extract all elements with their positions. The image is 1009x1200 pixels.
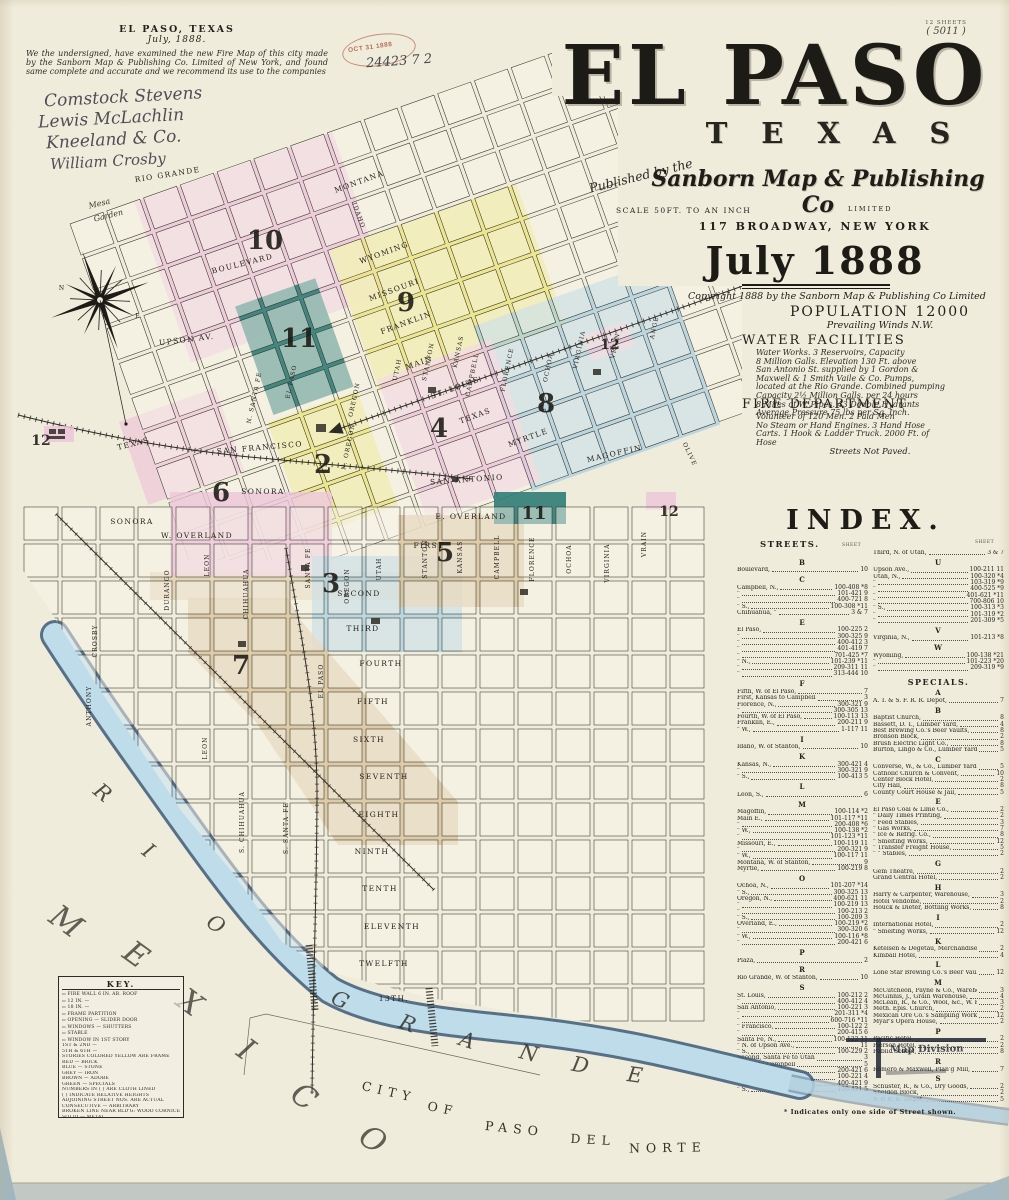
sheet-edges bbox=[0, 1128, 1009, 1200]
map-block bbox=[487, 104, 531, 147]
map-block bbox=[518, 618, 552, 651]
map-block bbox=[632, 988, 666, 1021]
map-block bbox=[480, 692, 514, 725]
map-block bbox=[632, 914, 666, 947]
street-label-sixth: SIXTH bbox=[353, 735, 385, 744]
map-block bbox=[290, 914, 324, 947]
map-block bbox=[328, 840, 362, 873]
map-block bbox=[252, 692, 286, 725]
map-block bbox=[404, 581, 438, 614]
map-block bbox=[366, 803, 400, 836]
map-block bbox=[442, 655, 476, 688]
map-block bbox=[176, 581, 210, 614]
map-block bbox=[404, 803, 438, 836]
map-block bbox=[176, 766, 210, 799]
map-block bbox=[252, 877, 286, 910]
street-label-kansas-s: KANSAS bbox=[457, 541, 464, 574]
copyright-stamp: OCT 31 1888 24423 7 2 bbox=[338, 34, 448, 84]
map-block bbox=[100, 618, 134, 651]
paso-del-norte-word: NORTE bbox=[629, 1139, 707, 1155]
map-block bbox=[252, 766, 286, 799]
map-block bbox=[556, 951, 590, 984]
street-label-vrain-s: VRAIN bbox=[641, 531, 648, 558]
map-block bbox=[556, 877, 590, 910]
map-block bbox=[450, 117, 494, 160]
mexico-letter: E bbox=[115, 933, 156, 976]
rio-grande-letter: R bbox=[88, 778, 116, 807]
map-block bbox=[556, 840, 590, 873]
map-block bbox=[404, 840, 438, 873]
map-block bbox=[632, 951, 666, 984]
map-block bbox=[389, 178, 433, 221]
key-title: KEY. bbox=[62, 979, 180, 990]
map-block bbox=[632, 544, 666, 577]
street-label-ochoa-s: OCHOA bbox=[566, 544, 573, 574]
map-block bbox=[518, 914, 552, 947]
map-block bbox=[594, 618, 628, 651]
map-block bbox=[556, 766, 590, 799]
title-date: July 1888 bbox=[640, 238, 990, 283]
signatures: Comstock StevensLewis McLachlinKneeland … bbox=[44, 84, 328, 168]
map-block bbox=[480, 803, 514, 836]
fire-department-text: Volunteer of 120 Men. 2 Paid MenNo Steam… bbox=[756, 413, 994, 447]
street-label-sonora-w: SONORA bbox=[110, 517, 153, 526]
map-block bbox=[138, 692, 172, 725]
map-block bbox=[176, 655, 210, 688]
rio-grande-letter: O bbox=[202, 909, 230, 939]
map-block bbox=[24, 951, 58, 984]
map-block bbox=[561, 196, 605, 239]
stamp-bar bbox=[876, 1038, 881, 1078]
map-block bbox=[518, 581, 552, 614]
title-address: 117 BROADWAY, NEW YORK bbox=[640, 220, 990, 233]
map-block bbox=[404, 692, 438, 725]
map-block bbox=[556, 618, 590, 651]
street-label-sonora: SONORA bbox=[241, 487, 284, 496]
map-block bbox=[290, 618, 324, 651]
attestation-date: July, 1888. bbox=[26, 35, 328, 45]
map-block bbox=[62, 840, 96, 873]
street-label-el-paso-s: EL PASO bbox=[318, 664, 325, 699]
map-block bbox=[438, 82, 482, 125]
district-number: 8 bbox=[537, 389, 555, 419]
map-block bbox=[100, 877, 134, 910]
map-block bbox=[480, 766, 514, 799]
map-block bbox=[366, 766, 400, 799]
map-block bbox=[138, 618, 172, 651]
compass-e-label: E bbox=[135, 313, 140, 320]
map-block bbox=[426, 165, 470, 208]
map-block bbox=[518, 803, 552, 836]
street-label-virginia-s: VIRGINIA bbox=[604, 543, 611, 583]
street-label-fourth: FOURTH bbox=[359, 659, 402, 668]
map-block bbox=[474, 69, 518, 112]
map-block bbox=[376, 143, 420, 186]
map-block bbox=[404, 507, 438, 540]
map-division-text: Map Division bbox=[890, 1043, 964, 1055]
map-block bbox=[632, 692, 666, 725]
map-block bbox=[442, 766, 476, 799]
paso-del-norte-word: DEL bbox=[570, 1131, 616, 1148]
map-block bbox=[518, 692, 552, 725]
title-city: EL PASO bbox=[552, 34, 998, 118]
map-block bbox=[594, 729, 628, 762]
map-block bbox=[670, 544, 704, 577]
title-scale: SCALE 50FT. TO AN INCH bbox=[616, 206, 751, 215]
map-block bbox=[100, 803, 134, 836]
mexico-letter: O bbox=[352, 1118, 393, 1162]
mexico-letter: M bbox=[42, 897, 91, 946]
map-block bbox=[214, 692, 248, 725]
street-label-overland-e: E. OVERLAND bbox=[435, 512, 506, 521]
map-block bbox=[252, 655, 286, 688]
map-block bbox=[670, 729, 704, 762]
paso-del-norte-word: CITY bbox=[360, 1078, 417, 1105]
map-division-stamp: Map Division bbox=[846, 1036, 996, 1086]
map-block bbox=[24, 544, 58, 577]
map-block bbox=[364, 108, 408, 151]
street-label-chihuahua-s: S. CHIHUAHUA bbox=[239, 791, 246, 853]
map-block bbox=[24, 803, 58, 836]
street-label-leon: LEON bbox=[204, 554, 211, 577]
map-block bbox=[176, 692, 210, 725]
map-block bbox=[556, 544, 590, 577]
district-number: 2 bbox=[314, 450, 332, 480]
map-block bbox=[670, 988, 704, 1021]
key-row: ADJOINING STREET NOS. ARE ACTUAL bbox=[62, 1098, 180, 1104]
map-block bbox=[594, 655, 628, 688]
street-label-chihuahua: CHIHUAHUA bbox=[243, 569, 250, 620]
district-number: 12 bbox=[659, 504, 678, 520]
map-block bbox=[518, 655, 552, 688]
map-block bbox=[24, 729, 58, 762]
map-block bbox=[670, 692, 704, 725]
map-block bbox=[518, 729, 552, 762]
street-label-twelfth: TWELFTH bbox=[359, 959, 409, 968]
map-block bbox=[290, 766, 324, 799]
street-label-seventh: SEVENTH bbox=[359, 772, 408, 781]
map-block bbox=[548, 161, 592, 204]
streets-not-paved: Streets Not Paved. bbox=[770, 447, 970, 457]
map-block bbox=[176, 618, 210, 651]
map-block bbox=[328, 729, 362, 762]
map-block bbox=[442, 581, 476, 614]
map-block bbox=[556, 729, 590, 762]
map-block bbox=[556, 507, 590, 540]
map-block bbox=[670, 581, 704, 614]
map-block bbox=[573, 230, 617, 273]
map-block bbox=[328, 803, 362, 836]
map-block bbox=[290, 507, 324, 540]
map-block bbox=[214, 951, 248, 984]
key-row: BROKEN LINE NEAR BLD'G: WOOD CORNICE bbox=[62, 1109, 180, 1115]
stamp-bar bbox=[846, 1038, 986, 1042]
street-label-fifth: FIFTH bbox=[357, 697, 389, 706]
paso-del-norte-word: PASO bbox=[484, 1118, 544, 1139]
mesa-garden-label: Mesa bbox=[87, 197, 112, 211]
map-block bbox=[252, 507, 286, 540]
street-label-utah-s: UTAH bbox=[376, 558, 383, 581]
rio-grande-letter: I bbox=[137, 838, 160, 863]
district-number: 4 bbox=[430, 414, 448, 444]
fire-line: Carts. 1 Hook & Ladder Truck. 2000 Ft. o… bbox=[756, 430, 994, 439]
district-number: 6 bbox=[212, 478, 230, 508]
map-block bbox=[442, 692, 476, 725]
map-block bbox=[594, 840, 628, 873]
map-block bbox=[62, 581, 96, 614]
index-footnote: * Indicates only one side of Street show… bbox=[737, 1108, 1003, 1116]
map-block bbox=[252, 581, 286, 614]
map-block bbox=[100, 655, 134, 688]
attestation-body: We the undersigned, have examined the ne… bbox=[26, 49, 328, 76]
map-block bbox=[328, 618, 362, 651]
street-label-campbell-s: CAMPBELL bbox=[494, 535, 501, 580]
street-label-florence-s: FLORENCE bbox=[529, 537, 536, 582]
map-block bbox=[594, 507, 628, 540]
map-block bbox=[518, 766, 552, 799]
map-block bbox=[328, 766, 362, 799]
map-block bbox=[413, 130, 457, 173]
map-block bbox=[328, 655, 362, 688]
stamp-number: 24423 7 2 bbox=[366, 52, 433, 72]
index-sheet-label: SHEET bbox=[842, 543, 861, 548]
map-block bbox=[632, 803, 666, 836]
map-block bbox=[594, 803, 628, 836]
map-block bbox=[518, 840, 552, 873]
rio-grande-letter: D bbox=[569, 1052, 591, 1079]
street-label-crosby: CROSBY bbox=[92, 624, 99, 657]
street-label-thirteenth: 13TH. bbox=[379, 994, 409, 1003]
map-block bbox=[632, 840, 666, 873]
district-number: 9 bbox=[397, 288, 415, 318]
street-label-olive: OLIVE bbox=[681, 441, 698, 467]
map-block bbox=[328, 507, 362, 540]
map-block bbox=[442, 914, 476, 947]
map-block bbox=[632, 766, 666, 799]
map-block bbox=[404, 951, 438, 984]
district-number: 11 bbox=[521, 503, 546, 524]
map-block bbox=[670, 803, 704, 836]
map-block bbox=[556, 988, 590, 1021]
map-block bbox=[176, 877, 210, 910]
map-block bbox=[404, 729, 438, 762]
title-limited: LIMITED bbox=[848, 205, 892, 213]
map-block bbox=[366, 877, 400, 910]
map-block bbox=[670, 618, 704, 651]
map-block bbox=[518, 951, 552, 984]
attestation-place: EL PASO, TEXAS bbox=[26, 24, 328, 35]
map-block bbox=[594, 914, 628, 947]
map-block bbox=[24, 877, 58, 910]
map-block bbox=[290, 877, 324, 910]
map-block bbox=[62, 729, 96, 762]
street-label-oregon-s: OREGON bbox=[344, 568, 351, 603]
map-block bbox=[632, 655, 666, 688]
map-block bbox=[252, 803, 286, 836]
map-block bbox=[366, 729, 400, 762]
map-block bbox=[24, 581, 58, 614]
map-block bbox=[594, 877, 628, 910]
map-block bbox=[518, 877, 552, 910]
district-number: 7 bbox=[232, 651, 250, 681]
map-block bbox=[670, 766, 704, 799]
map-block bbox=[442, 840, 476, 873]
street-label-tenth: TENTH bbox=[362, 884, 398, 893]
map-block bbox=[24, 655, 58, 688]
district-number: 5 bbox=[436, 538, 454, 568]
map-block bbox=[480, 581, 514, 614]
map-block bbox=[100, 840, 134, 873]
street-label-santa-fe: SANTA FE bbox=[305, 548, 312, 589]
map-block bbox=[24, 840, 58, 873]
street-label-ninth: NINTH bbox=[355, 847, 390, 856]
map-block bbox=[480, 914, 514, 947]
street-label-durango: DURANGO bbox=[164, 569, 171, 610]
map-block bbox=[480, 655, 514, 688]
street-label-stanton-s: STANTON bbox=[422, 539, 429, 578]
map-block bbox=[404, 618, 438, 651]
map-block bbox=[462, 152, 506, 195]
street-label-third: THIRD bbox=[346, 624, 379, 633]
map-block bbox=[632, 877, 666, 910]
map-block bbox=[290, 840, 324, 873]
map-block bbox=[480, 877, 514, 910]
index-streets-heading: STREETS. bbox=[760, 540, 820, 550]
map-block bbox=[480, 729, 514, 762]
map-block bbox=[480, 951, 514, 984]
map-block bbox=[480, 840, 514, 873]
index-sheet-label: SHEET bbox=[975, 540, 994, 545]
map-block bbox=[252, 729, 286, 762]
map-block bbox=[100, 914, 134, 947]
stamp-smudge bbox=[886, 1069, 946, 1075]
map-block bbox=[24, 988, 58, 1021]
title-copyright: Copyright 1888 by the Sanborn Map & Publ… bbox=[688, 291, 988, 302]
map-block bbox=[670, 655, 704, 688]
map-block bbox=[366, 544, 400, 577]
map-block bbox=[594, 951, 628, 984]
attestation-block: EL PASO, TEXAS July, 1888. We the unders… bbox=[26, 24, 328, 168]
paso-del-norte-word: OF bbox=[426, 1098, 459, 1119]
map-block bbox=[480, 618, 514, 651]
map-block bbox=[290, 729, 324, 762]
map-block bbox=[328, 877, 362, 910]
district-number: 10 bbox=[247, 226, 283, 256]
district-number: 12 bbox=[31, 433, 50, 449]
map-key-legend: KEY. FIRE WALL 6 IN. AB. ROOF12 IN. —18 … bbox=[58, 976, 184, 1118]
street-label-eleventh: ELEVENTH bbox=[364, 922, 420, 931]
map-block bbox=[556, 581, 590, 614]
map-block bbox=[252, 544, 286, 577]
street-label-eighth: EIGHTH bbox=[359, 810, 400, 819]
map-block bbox=[632, 618, 666, 651]
map-block bbox=[404, 655, 438, 688]
compass-n-label: N bbox=[59, 285, 65, 292]
map-block bbox=[594, 692, 628, 725]
map-block bbox=[670, 877, 704, 910]
map-block bbox=[632, 729, 666, 762]
winds-line: Prevailing Winds N.W. bbox=[770, 320, 990, 331]
key-row: STORIES COLORED YELLOW ARE FRAME bbox=[62, 1054, 180, 1060]
street-label-overland-w: W. OVERLAND bbox=[161, 531, 233, 540]
map-block bbox=[404, 766, 438, 799]
map-block bbox=[62, 803, 96, 836]
map-block bbox=[252, 840, 286, 873]
street-label-anthony: ANTHONY bbox=[86, 686, 93, 728]
index-heading: INDEX. bbox=[735, 505, 997, 536]
map-block bbox=[252, 618, 286, 651]
district-number: 11 bbox=[281, 324, 317, 354]
water-facilities-heading: WATER FACILITIES bbox=[742, 333, 906, 348]
map-block bbox=[366, 507, 400, 540]
street-label-leon-s: LEON bbox=[202, 737, 209, 760]
map-block bbox=[594, 988, 628, 1021]
map-block bbox=[214, 988, 248, 1021]
map-block bbox=[670, 951, 704, 984]
map-block bbox=[401, 95, 445, 138]
district-number: 12 bbox=[600, 337, 619, 353]
mexico-letter: C bbox=[284, 1075, 325, 1118]
map-block bbox=[442, 877, 476, 910]
map-block bbox=[442, 618, 476, 651]
map-block bbox=[556, 692, 590, 725]
map-block bbox=[594, 544, 628, 577]
map-block bbox=[511, 56, 555, 99]
map-block bbox=[442, 729, 476, 762]
map-block bbox=[119, 352, 163, 395]
key-row: SOLID — METAL bbox=[62, 1115, 180, 1121]
map-block bbox=[404, 877, 438, 910]
title-rule bbox=[742, 284, 890, 289]
map-block bbox=[670, 840, 704, 873]
map-block bbox=[594, 581, 628, 614]
map-block bbox=[138, 877, 172, 910]
map-block bbox=[556, 914, 590, 947]
map-block bbox=[24, 692, 58, 725]
map-block bbox=[556, 655, 590, 688]
map-block bbox=[24, 766, 58, 799]
map-block bbox=[536, 126, 580, 169]
rio-grande-letter: E bbox=[625, 1062, 645, 1088]
population-line: POPULATION 12000 bbox=[770, 304, 990, 320]
map-block bbox=[442, 803, 476, 836]
street-label-santa-fe-s: S. SANTA FE bbox=[283, 802, 290, 854]
fire-department-heading: FIRE DEPARTMENT bbox=[742, 397, 908, 412]
key-rows: FIRE WALL 6 IN. AB. ROOF12 IN. —18 IN. —… bbox=[62, 991, 180, 1120]
title-state: TEXAS bbox=[652, 116, 1004, 150]
map-block bbox=[366, 840, 400, 873]
map-block bbox=[328, 914, 362, 947]
map-block bbox=[632, 581, 666, 614]
map-block bbox=[442, 951, 476, 984]
map-block bbox=[594, 766, 628, 799]
mexico-letter: I bbox=[230, 1031, 262, 1068]
map-block bbox=[214, 729, 248, 762]
map-block bbox=[499, 139, 543, 182]
map-block bbox=[556, 803, 590, 836]
map-block bbox=[138, 655, 172, 688]
district-number: 3 bbox=[322, 569, 340, 599]
map-block bbox=[670, 914, 704, 947]
map-block bbox=[24, 507, 58, 540]
